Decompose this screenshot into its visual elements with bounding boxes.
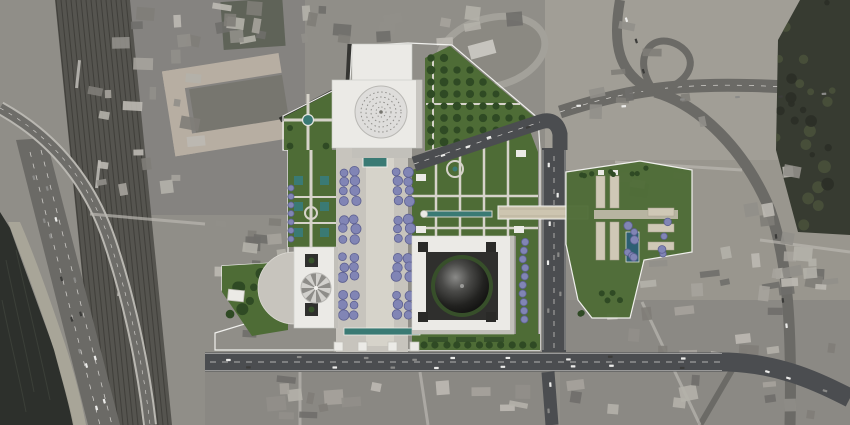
building-block [641, 307, 652, 321]
ribbed-dome [301, 273, 331, 303]
tree [350, 271, 359, 280]
water-channel [426, 211, 492, 217]
building-block [299, 411, 317, 418]
building-block [784, 399, 796, 412]
tree [479, 102, 486, 109]
tree [599, 290, 605, 296]
tree [492, 114, 500, 122]
tree [288, 219, 294, 225]
car [501, 366, 506, 368]
car [778, 95, 783, 97]
building-block [589, 104, 602, 119]
building-block [827, 343, 835, 353]
car [506, 357, 511, 359]
building-block [751, 253, 761, 268]
tree [351, 224, 361, 234]
tree [492, 102, 499, 109]
tree [339, 310, 349, 320]
central-walkway [366, 150, 394, 346]
tree [350, 166, 360, 176]
tree [443, 341, 450, 348]
building-block [780, 231, 794, 245]
tree [624, 221, 633, 230]
tree [664, 218, 672, 226]
forest-tree [801, 139, 812, 150]
car [680, 98, 685, 100]
building-block [267, 233, 282, 245]
tree [405, 186, 413, 194]
tree [288, 236, 294, 242]
building-block [266, 396, 287, 412]
tree [403, 167, 413, 177]
tree [611, 172, 616, 177]
tree [340, 177, 349, 186]
tree [288, 194, 294, 200]
car [735, 96, 740, 98]
tree [339, 236, 347, 244]
building-block [341, 396, 361, 407]
car [609, 365, 614, 367]
building-block [464, 5, 480, 21]
car [557, 252, 559, 257]
tree [250, 284, 258, 292]
tree [610, 290, 616, 296]
tree [394, 234, 402, 242]
dome-finial [314, 286, 318, 290]
forest-tree [799, 55, 808, 64]
tree [405, 196, 415, 206]
car [547, 260, 549, 265]
building-block [781, 278, 798, 287]
tree [466, 90, 474, 98]
building-block [376, 31, 391, 43]
lattice-dome [355, 86, 407, 138]
tree [393, 253, 402, 262]
tree [352, 196, 361, 205]
forest-tree [813, 200, 824, 211]
tree [441, 103, 448, 110]
car [547, 408, 550, 413]
tree [617, 297, 623, 303]
tree [392, 168, 400, 176]
forest-tree [776, 106, 785, 115]
building-block [803, 267, 818, 279]
building-block [112, 37, 130, 49]
tree [350, 176, 360, 186]
tree [349, 215, 358, 224]
tree [476, 341, 483, 348]
building-block [136, 7, 155, 21]
building-block [324, 389, 344, 405]
tree [466, 102, 474, 110]
tree [453, 102, 462, 111]
building-block [177, 34, 192, 48]
building-block [224, 13, 237, 26]
car [566, 358, 571, 360]
forest-tree [825, 144, 832, 151]
tree [288, 185, 294, 191]
building-block [133, 149, 143, 155]
car [681, 357, 686, 359]
building-block [338, 34, 351, 43]
car [246, 366, 251, 368]
building-block [772, 269, 782, 280]
tree [405, 223, 415, 233]
building-block [607, 404, 619, 415]
tree [522, 238, 529, 245]
building-block [287, 388, 303, 401]
car [576, 105, 581, 107]
tree [505, 102, 513, 110]
tree [519, 256, 526, 263]
tree [440, 138, 449, 147]
tree [288, 211, 294, 217]
tree [420, 341, 427, 348]
tree [466, 66, 473, 73]
tree [288, 202, 294, 208]
tree [339, 187, 347, 195]
building-block [318, 6, 326, 14]
car [297, 356, 302, 358]
building-block [743, 202, 759, 217]
tree [350, 291, 359, 300]
tree [440, 126, 449, 135]
building-block [105, 90, 112, 98]
tree [519, 341, 526, 348]
tree [486, 341, 493, 348]
building-block [141, 157, 152, 170]
building-block [768, 308, 783, 315]
building-block [123, 101, 143, 111]
tree [453, 78, 460, 85]
forest-tree [821, 178, 834, 191]
tree [509, 341, 516, 348]
building-block [628, 328, 640, 342]
building-block [815, 284, 826, 290]
building-block [242, 242, 258, 253]
tree [466, 78, 474, 86]
forest-tree [802, 193, 814, 205]
building-block [506, 11, 523, 26]
tree [522, 264, 529, 271]
building-block [131, 21, 143, 29]
tree [453, 341, 460, 348]
tree [440, 90, 449, 99]
forest-tree [800, 107, 806, 113]
building-block [758, 285, 770, 301]
tree [579, 310, 585, 316]
building-block [643, 48, 662, 56]
tree [350, 262, 359, 271]
tree [519, 281, 526, 288]
building-block [649, 260, 668, 267]
car [226, 359, 231, 361]
building-block [764, 394, 776, 403]
forest-tree [798, 219, 809, 230]
car [621, 105, 626, 107]
tree [427, 54, 434, 61]
building-block [173, 99, 180, 107]
tree [631, 229, 638, 236]
tree [392, 310, 402, 320]
car [557, 193, 559, 198]
forest-tree [785, 92, 796, 103]
building-block [160, 180, 174, 194]
tree [505, 114, 512, 121]
tree [339, 290, 348, 299]
kiosk-dome [421, 211, 428, 218]
building-block [215, 220, 226, 227]
tree [643, 166, 648, 171]
fountain [303, 115, 314, 126]
tree [393, 187, 402, 196]
building-block [133, 58, 153, 70]
building-block [440, 17, 451, 27]
satellite-patch [205, 372, 550, 425]
tree [453, 90, 460, 97]
tree [427, 78, 434, 85]
car [332, 366, 337, 368]
building-block [808, 259, 816, 267]
forest-tree [807, 88, 814, 95]
building-block [171, 50, 181, 64]
building-block [173, 15, 181, 28]
tree [480, 91, 487, 98]
tree [427, 138, 434, 145]
tree [440, 54, 448, 62]
tree [339, 253, 347, 261]
building-block [171, 175, 180, 181]
car [608, 356, 613, 358]
tree [350, 235, 359, 244]
building-block [279, 412, 294, 420]
tree [589, 171, 594, 176]
car [680, 367, 685, 369]
car [549, 382, 552, 387]
tree [630, 171, 635, 176]
tree [404, 177, 413, 186]
building-block [761, 202, 775, 217]
building-block [150, 87, 157, 100]
building-block [735, 333, 751, 344]
tree [338, 272, 348, 282]
tree [605, 297, 611, 303]
tree [340, 169, 348, 177]
tree [658, 246, 666, 254]
building-block [436, 380, 450, 395]
forest-tree [824, 0, 829, 5]
building-block [691, 283, 703, 297]
tree [288, 228, 294, 234]
tree [661, 233, 668, 240]
tree [236, 303, 248, 315]
car [559, 292, 561, 297]
tree [479, 114, 487, 122]
forest-tree [810, 152, 815, 157]
tree [427, 102, 434, 109]
building-block [806, 410, 815, 419]
building-block [279, 383, 289, 394]
aerial-masterplan-image [0, 0, 850, 425]
tree [520, 247, 527, 254]
tree [350, 253, 359, 262]
tree [453, 114, 461, 122]
tree [521, 316, 528, 323]
tree [226, 310, 235, 319]
car [412, 359, 417, 361]
tree [391, 271, 401, 281]
forest-tree [795, 79, 804, 88]
car [548, 163, 550, 168]
tree [630, 236, 638, 244]
scene-canvas [0, 0, 850, 425]
car [364, 357, 369, 359]
car [434, 367, 439, 369]
tree [393, 300, 403, 310]
building-block [246, 1, 262, 16]
tree [493, 91, 500, 98]
tree [393, 291, 401, 299]
tree [393, 225, 401, 233]
tree [520, 307, 527, 314]
great-mosque [412, 236, 514, 334]
tree [453, 66, 460, 73]
tree [427, 66, 436, 75]
building-block [515, 385, 530, 399]
tree [521, 273, 528, 280]
building-block [269, 218, 282, 226]
building-block [187, 135, 206, 147]
small-pavilion [227, 289, 244, 302]
tree [530, 341, 537, 348]
tree [464, 341, 471, 348]
forest-tree [822, 97, 832, 107]
tree [520, 299, 527, 306]
tree [467, 115, 474, 122]
tree [427, 114, 434, 121]
tree [497, 341, 504, 348]
tree [394, 196, 403, 205]
tree [440, 78, 449, 87]
tree [466, 126, 473, 133]
tree [427, 126, 435, 134]
central-esplanade [334, 140, 420, 352]
building-block [230, 30, 244, 43]
car [390, 366, 395, 368]
forest-tree [818, 160, 831, 173]
tree [246, 297, 254, 305]
tree [350, 301, 358, 309]
forest-tree [786, 73, 797, 84]
tree [394, 216, 403, 225]
tree [454, 127, 461, 134]
car [822, 93, 827, 95]
building-block [185, 73, 201, 83]
car [571, 365, 576, 367]
tree [350, 186, 360, 196]
forest-tree [829, 87, 836, 94]
tree [393, 176, 403, 186]
building-block [570, 391, 582, 404]
tree [440, 66, 448, 74]
reflecting-pool-south [344, 328, 420, 335]
tree [349, 311, 358, 320]
tree [479, 78, 487, 86]
building-block [471, 387, 490, 396]
tree [440, 114, 448, 122]
car [549, 221, 551, 226]
forest-tree [805, 115, 817, 127]
building-block [97, 161, 108, 169]
pool-parterre-garden [288, 150, 336, 247]
tree [339, 197, 348, 206]
forest-tree [791, 117, 799, 125]
tree [339, 224, 348, 233]
tree [338, 300, 348, 310]
building-block [691, 375, 700, 386]
tree [404, 311, 412, 319]
barracks-building [162, 53, 292, 156]
car [547, 308, 549, 313]
tree [340, 263, 349, 272]
tree [431, 341, 438, 348]
tree [630, 254, 638, 262]
entrance-stage [352, 148, 412, 158]
tree [519, 290, 526, 297]
tree [635, 171, 640, 176]
tree [427, 90, 435, 98]
car [450, 357, 455, 359]
tree [582, 173, 587, 178]
south-garden-band [412, 334, 540, 350]
tree [403, 214, 413, 224]
